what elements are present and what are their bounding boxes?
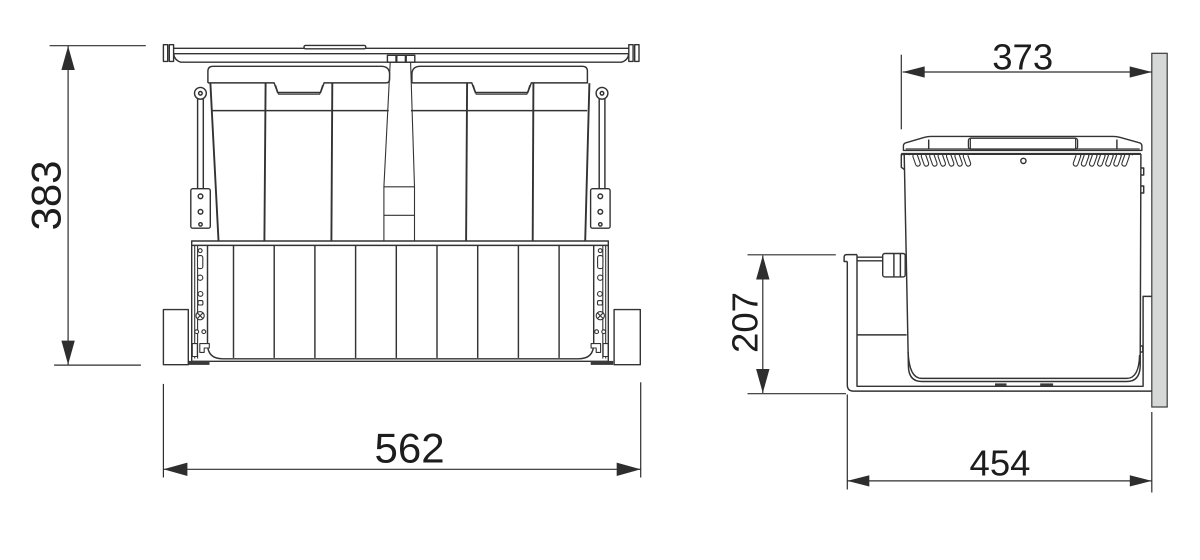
svg-text:454: 454	[970, 443, 1031, 484]
svg-text:207: 207	[725, 292, 766, 353]
svg-text:373: 373	[992, 36, 1053, 77]
svg-text:562: 562	[375, 425, 445, 472]
svg-text:383: 383	[22, 160, 69, 230]
